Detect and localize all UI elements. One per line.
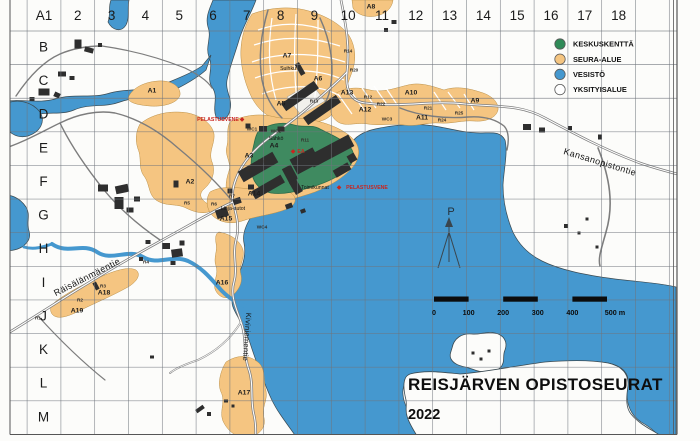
building [162, 243, 170, 249]
area-label: A13 [341, 90, 354, 97]
building [127, 208, 134, 213]
area-label: A12 [359, 107, 372, 114]
safety-marker-icon: ◆ [337, 185, 342, 191]
grid-column-label: A1 [36, 8, 53, 23]
area-label: A7 [283, 53, 292, 60]
building [564, 224, 568, 228]
legend-swatch-keskuskentta [555, 39, 565, 49]
facility-label: Linja-autot [221, 206, 246, 212]
facility-label: WC1 [247, 127, 258, 132]
scale-bar-segment [434, 297, 469, 302]
grid-row-label: E [39, 140, 48, 155]
scale-tick-label: 400 [566, 308, 578, 317]
legend-swatch-vesisto [555, 69, 565, 79]
facility-label: R11 [301, 138, 310, 143]
facility-label: R4 [143, 260, 149, 265]
legend-item-label: KESKUSKENTTÄ [573, 40, 634, 49]
facility-label: R21 [424, 106, 433, 111]
building [207, 412, 211, 416]
grid-column-label: 10 [341, 8, 356, 23]
building [596, 246, 599, 249]
area-label: A11 [416, 115, 428, 122]
grid-column-label: 15 [510, 8, 525, 23]
facility-label: R6 [211, 202, 217, 207]
grid-row-label: L [40, 376, 48, 391]
legend-item-label: VESISTÖ [573, 70, 605, 79]
grid-row-label: G [38, 208, 49, 223]
building [58, 72, 66, 77]
building [30, 97, 35, 101]
area-label: A4 [270, 143, 279, 150]
grid-row-label: M [38, 409, 49, 424]
grid-row-label: B [39, 40, 48, 55]
grid-column-label: 3 [108, 8, 116, 23]
map-title: REISJÄRVEN OPISTOSEURAT [408, 375, 663, 394]
grid-row-label: F [39, 174, 47, 189]
facility-label: R13 [310, 99, 319, 104]
building [392, 20, 397, 24]
legend-item-label: SEURA-ALUE [573, 55, 622, 64]
facility-label: R12 [364, 95, 373, 100]
building [384, 28, 388, 32]
facility-label: WC2 [271, 129, 282, 134]
building [259, 126, 267, 132]
pond [0, 195, 30, 250]
map-page: A123456789101112131415161718BCDEFGHIJKLM… [0, 0, 700, 441]
grid-row-label: D [39, 107, 49, 122]
building [586, 218, 589, 221]
area-label: A3 [245, 153, 254, 160]
grid-column-label: 4 [142, 8, 150, 23]
scale-bar-segment [572, 297, 607, 302]
grid-column-label: 9 [311, 8, 319, 23]
safety-label: PELASTUSVENE [346, 185, 388, 191]
legend-item-label: YKSITYISALUE [573, 85, 627, 94]
grid-column-label: 11 [375, 8, 389, 23]
grid-row-label: K [39, 342, 48, 357]
facility-label: Sähkö [269, 136, 284, 142]
area-label: A19 [71, 308, 84, 315]
legend-swatch-seura-alue [555, 54, 565, 64]
map-year: 2022 [408, 407, 440, 423]
area-label: A18 [98, 290, 111, 297]
building [180, 241, 185, 246]
building [84, 46, 94, 53]
safety-label: PELASTUSVENE [197, 117, 239, 123]
building [171, 261, 176, 265]
facility-label: R2 [77, 298, 83, 303]
building [146, 240, 151, 244]
safety-marker-icon: ◆ [240, 117, 245, 123]
building [70, 76, 75, 80]
building [53, 91, 61, 98]
area-label: A5 [277, 101, 286, 108]
building [488, 350, 491, 353]
grid-column-label: 8 [277, 8, 285, 23]
building [232, 405, 235, 408]
safety-label: EA [297, 149, 304, 155]
facility-label: Suihku [280, 66, 296, 72]
facility-label: R10 [258, 159, 267, 164]
map-canvas: A123456789101112131415161718BCDEFGHIJKLM… [0, 0, 700, 441]
facility-label: WC4 [257, 225, 268, 230]
building [568, 126, 572, 130]
area-label: A17 [238, 390, 251, 397]
building [174, 181, 179, 188]
facility-label: R24 [438, 118, 447, 123]
facility-label: WC3 [382, 117, 393, 122]
facility-label: R22 [377, 102, 386, 107]
area-label: A1 [148, 88, 157, 95]
grid-column-label: 2 [74, 8, 82, 23]
scale-tick-label: 200 [497, 308, 509, 317]
building [523, 124, 531, 130]
building [75, 40, 82, 49]
area-label: A2 [186, 179, 195, 186]
grid-column-label: 7 [243, 8, 251, 23]
grid-row-label: H [39, 241, 49, 256]
facility-label: R20 [350, 68, 359, 73]
grid-column-label: 12 [408, 8, 423, 23]
building [472, 352, 475, 355]
grid-column-label: 6 [209, 8, 217, 23]
scale-tick-label: 500 m [605, 308, 625, 317]
grid-column-label: 18 [611, 8, 626, 23]
grid-column-label: 17 [577, 8, 592, 23]
building [39, 89, 50, 96]
legend-swatch-yksityisalue [555, 84, 565, 94]
scale-tick-label: 0 [432, 308, 436, 317]
area-label: A6 [314, 76, 323, 83]
scale-bar-segment [503, 297, 538, 302]
scale-tick-label: 100 [463, 308, 475, 317]
facility-label: R14 [344, 49, 353, 54]
area-label: A16 [216, 280, 229, 287]
grid-column-label: 5 [175, 8, 183, 23]
building [248, 185, 254, 190]
compass-label: P [447, 206, 454, 218]
building [98, 185, 108, 192]
building [115, 184, 129, 195]
facility-label: R9 [246, 169, 252, 174]
area-label: A9 [471, 98, 480, 105]
facility-label: R25 [455, 111, 464, 116]
building [480, 358, 483, 361]
building [98, 43, 102, 47]
grid-column-label: 13 [442, 8, 457, 23]
area-label: A8 [367, 4, 376, 11]
building [150, 356, 154, 359]
grid-row-label: I [42, 275, 46, 290]
facility-label: R5 [184, 201, 190, 206]
area-label: A14 [248, 191, 261, 198]
safety-marker-icon: ◆ [291, 149, 296, 155]
area-label: A15 [220, 216, 233, 223]
grid-column-label: 14 [476, 8, 492, 23]
facility-label: R7 [229, 194, 235, 199]
area-label: A10 [405, 90, 418, 97]
facility-label: R1 [35, 316, 41, 321]
building [171, 248, 183, 257]
facility-label: R3 [100, 284, 106, 289]
grid-row-label: J [40, 308, 47, 323]
grid-column-label: 16 [543, 8, 558, 23]
grid-row-label: C [39, 73, 49, 88]
facility-label: Toimikunnat [301, 185, 329, 191]
scale-tick-label: 300 [532, 308, 544, 317]
legend: KESKUSKENTTÄSEURA-ALUEVESISTÖYKSITYISALU… [555, 39, 635, 95]
building [195, 405, 205, 413]
